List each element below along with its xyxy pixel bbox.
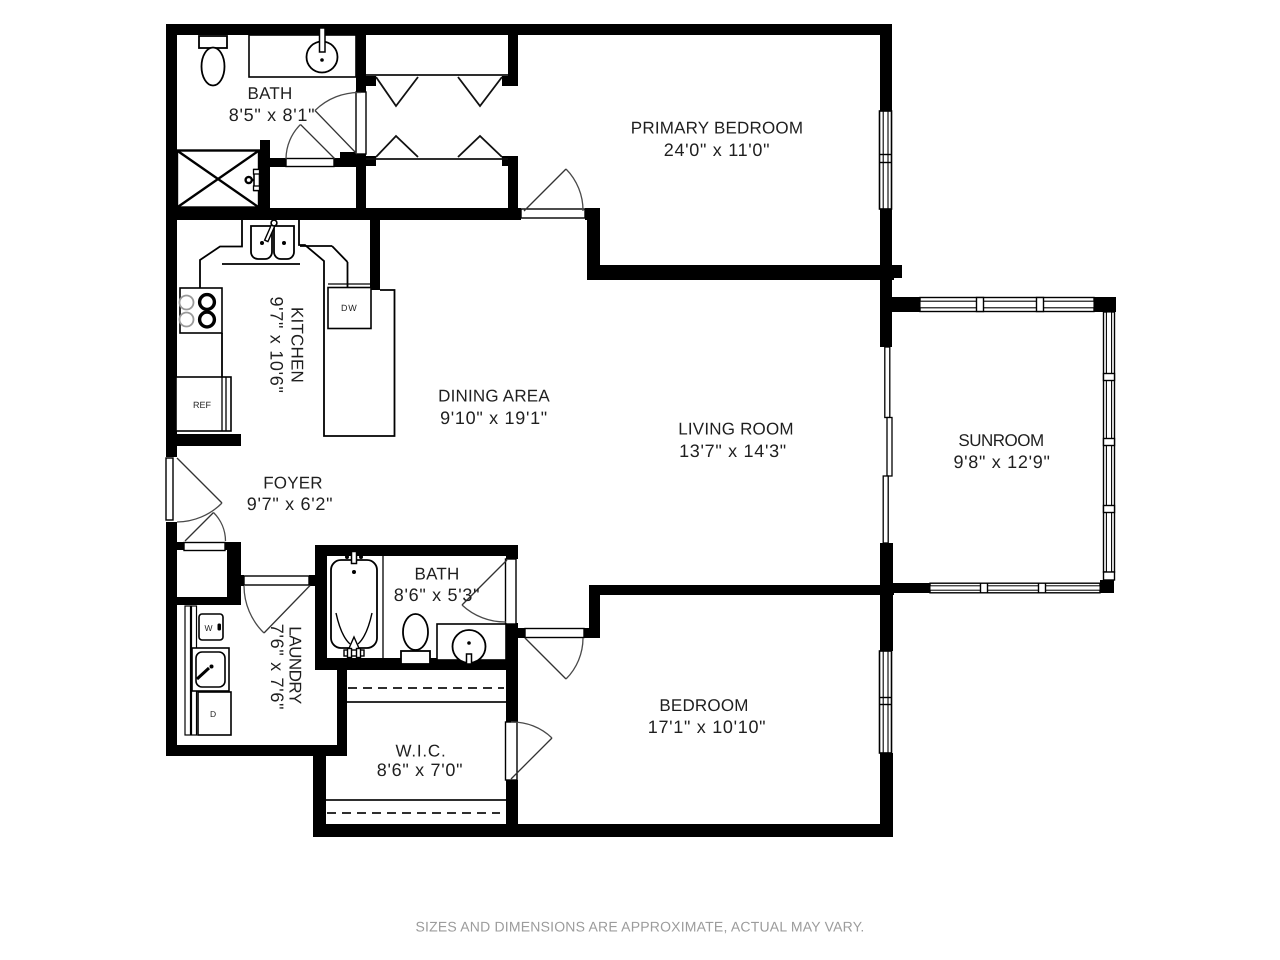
svg-text:PRIMARY BEDROOM: PRIMARY BEDROOM xyxy=(631,119,803,138)
svg-text:SIZES AND DIMENSIONS ARE APPRO: SIZES AND DIMENSIONS ARE APPROXIMATE, AC… xyxy=(415,919,864,935)
svg-text:D: D xyxy=(210,709,216,719)
svg-text:FOYER: FOYER xyxy=(263,474,323,493)
svg-text:REF: REF xyxy=(193,400,212,410)
svg-text:17'1" x 10'10": 17'1" x 10'10" xyxy=(648,717,767,737)
svg-text:9'10" x 19'1": 9'10" x 19'1" xyxy=(440,408,548,428)
svg-text:DINING AREA: DINING AREA xyxy=(438,387,550,406)
svg-text:8'6" x 5'3": 8'6" x 5'3" xyxy=(394,585,480,605)
svg-text:13'7" x 14'3": 13'7" x 14'3" xyxy=(679,441,787,461)
svg-text:BATH: BATH xyxy=(415,565,460,584)
svg-text:8'5" x 8'1": 8'5" x 8'1" xyxy=(229,105,315,125)
svg-text:W: W xyxy=(205,623,213,633)
svg-text:9'8" x 12'9": 9'8" x 12'9" xyxy=(953,452,1050,472)
svg-text:KITCHEN: KITCHEN xyxy=(288,307,307,383)
svg-text:8'6" x 7'0": 8'6" x 7'0" xyxy=(377,760,463,780)
svg-text:LAUNDRY: LAUNDRY xyxy=(286,626,305,704)
svg-text:7'6" x 7'6": 7'6" x 7'6" xyxy=(267,624,287,710)
svg-text:BEDROOM: BEDROOM xyxy=(659,696,748,715)
svg-text:9'7" x 10'6": 9'7" x 10'6" xyxy=(267,296,287,393)
svg-text:W.I.C.: W.I.C. xyxy=(395,742,446,761)
svg-text:DW: DW xyxy=(341,303,358,313)
svg-text:LIVING ROOM: LIVING ROOM xyxy=(678,420,794,439)
svg-text:24'0" x 11'0": 24'0" x 11'0" xyxy=(664,140,770,160)
svg-text:SUNROOM: SUNROOM xyxy=(958,431,1043,450)
svg-text:BATH: BATH xyxy=(248,84,293,103)
svg-text:9'7" x 6'2": 9'7" x 6'2" xyxy=(247,494,333,514)
